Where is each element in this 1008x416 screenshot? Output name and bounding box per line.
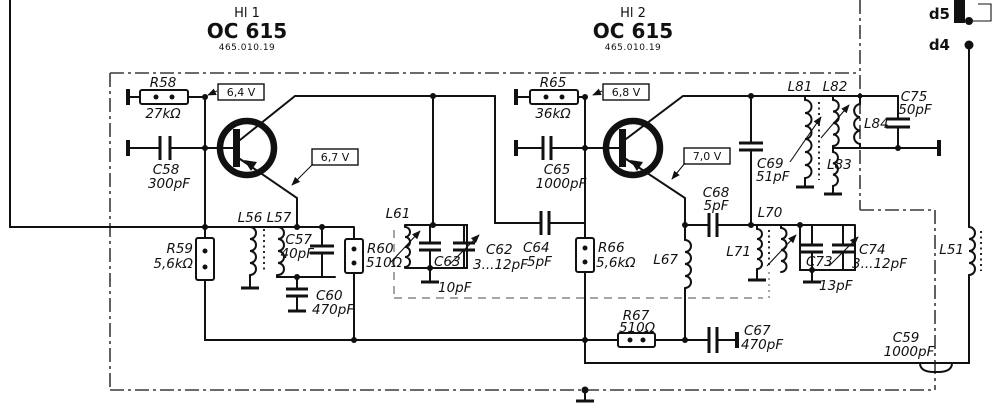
resistor-R60 bbox=[345, 239, 363, 273]
label-C69-value: 51pF bbox=[756, 169, 790, 185]
label-C68-value: 5pF bbox=[704, 198, 729, 214]
capacitor-C65 bbox=[543, 136, 551, 160]
resistor-R58 bbox=[140, 90, 188, 104]
resistor-R66 bbox=[576, 238, 594, 272]
inductor-L81 bbox=[790, 100, 821, 187]
label-C74-value: 3...12pF bbox=[852, 256, 907, 272]
label-R58-value: 27kΩ bbox=[145, 106, 181, 122]
resistor-R59 bbox=[196, 238, 214, 280]
voltage-value: 7,0 V bbox=[693, 150, 722, 163]
capacitor-C67 bbox=[709, 327, 717, 353]
capacitor-C75 bbox=[886, 119, 910, 127]
terminal-label-d4: d4 bbox=[929, 36, 950, 54]
label-C62-value: 3...12pF bbox=[473, 257, 528, 273]
label-C63-value: 10pF bbox=[438, 280, 472, 296]
type: OC 615 bbox=[593, 19, 673, 43]
voltage-value: 6,7 V bbox=[321, 151, 350, 164]
type: OC 615 bbox=[207, 19, 287, 43]
label-L84: L84 bbox=[864, 116, 889, 132]
label-R65-ref: R65 bbox=[540, 75, 567, 91]
label-C64-value: 5pF bbox=[527, 254, 552, 270]
label-R58-ref: R58 bbox=[150, 75, 177, 91]
terminal-label-d5: d5 bbox=[929, 5, 950, 23]
part-number: 465.010.19 bbox=[605, 43, 662, 53]
label-R66-value: 5,6kΩ bbox=[596, 255, 636, 271]
label-C62-ref: C62 bbox=[486, 242, 513, 258]
label-R59-value: 5,6kΩ bbox=[153, 256, 193, 272]
voltage-callout-base2: 6,8 V bbox=[593, 84, 649, 100]
label-R59-ref: R59 bbox=[166, 241, 193, 257]
label-R66-ref: R66 bbox=[598, 240, 625, 256]
label-C63-ref: C63 bbox=[434, 254, 461, 270]
label-L57: L57 bbox=[267, 210, 292, 226]
transistor-header-hl1: Hl 1 OC 615 465.010.19 bbox=[207, 6, 287, 53]
schematic-page: 6,4 V 6,7 V 6,8 V 7,0 V Hl 1 OC 615 465.… bbox=[0, 0, 1008, 416]
label-R65-value: 36kΩ bbox=[535, 106, 571, 122]
part-number: 465.010.19 bbox=[219, 43, 276, 53]
voltage-value: 6,4 V bbox=[227, 86, 256, 99]
connector-d4 bbox=[965, 41, 974, 50]
label-L82: L82 bbox=[823, 79, 848, 95]
inductor-L67 bbox=[685, 240, 691, 288]
label-L67: L67 bbox=[653, 252, 678, 268]
module-boundary bbox=[110, 0, 935, 390]
label-C75-value: 50pF bbox=[898, 102, 932, 118]
adjust-arrow-icon bbox=[790, 117, 821, 162]
capacitor-C59-feedthrough bbox=[920, 363, 952, 372]
capacitor-C73 bbox=[801, 245, 823, 252]
label-L51: L51 bbox=[939, 242, 964, 258]
inductor-L70 bbox=[767, 228, 796, 272]
label-L70: L70 bbox=[758, 205, 783, 221]
label-C73-ref: C73 bbox=[806, 254, 833, 270]
adjust-arrow-icon bbox=[821, 105, 849, 138]
label-L83: L83 bbox=[827, 157, 852, 173]
label-C73-value: 13pF bbox=[819, 278, 853, 294]
label-L71: L71 bbox=[726, 244, 751, 260]
label-C60-value: 470pF bbox=[312, 302, 354, 318]
label-R67-value: 510Ω bbox=[619, 320, 656, 336]
label-C65-value: 1000pF bbox=[536, 176, 587, 192]
if-amplifier-schematic: 6,4 V 6,7 V 6,8 V 7,0 V Hl 1 OC 615 465.… bbox=[0, 0, 1008, 416]
transistor-header-hl2: Hl 2 OC 615 465.010.19 bbox=[593, 6, 673, 53]
capacitor-C64 bbox=[541, 211, 549, 235]
capacitor-C58 bbox=[160, 136, 170, 160]
label-L81: L81 bbox=[788, 79, 813, 95]
inductor-L51 bbox=[969, 227, 981, 275]
voltage-callout-emitter2: 7,0 V bbox=[672, 148, 730, 179]
label-L61: L61 bbox=[386, 206, 411, 222]
voltage-callout-emitter1: 6,7 V bbox=[292, 149, 358, 185]
capacitor-C69 bbox=[739, 143, 763, 150]
capacitor-C63 bbox=[419, 243, 441, 250]
voltage-callout-base1: 6,4 V bbox=[208, 84, 264, 100]
label-C57-value: 40pF bbox=[280, 246, 314, 262]
inductor-L82 bbox=[821, 100, 849, 146]
capacitor-C60 bbox=[286, 289, 308, 296]
inductor-L84 bbox=[854, 104, 860, 144]
label-L56: L56 bbox=[238, 210, 263, 226]
voltage-value: 6,8 V bbox=[612, 86, 641, 99]
capacitor-C68 bbox=[709, 213, 717, 237]
inductor-L56 bbox=[241, 227, 259, 288]
label-C67-value: 470pF bbox=[741, 337, 783, 353]
label-R60-value: 510Ω bbox=[366, 255, 403, 271]
label-C59-value: 1000pF bbox=[884, 344, 935, 360]
connector-d5 bbox=[954, 0, 991, 25]
label-C58-value: 300pF bbox=[148, 176, 190, 192]
resistor-R65 bbox=[530, 90, 578, 104]
